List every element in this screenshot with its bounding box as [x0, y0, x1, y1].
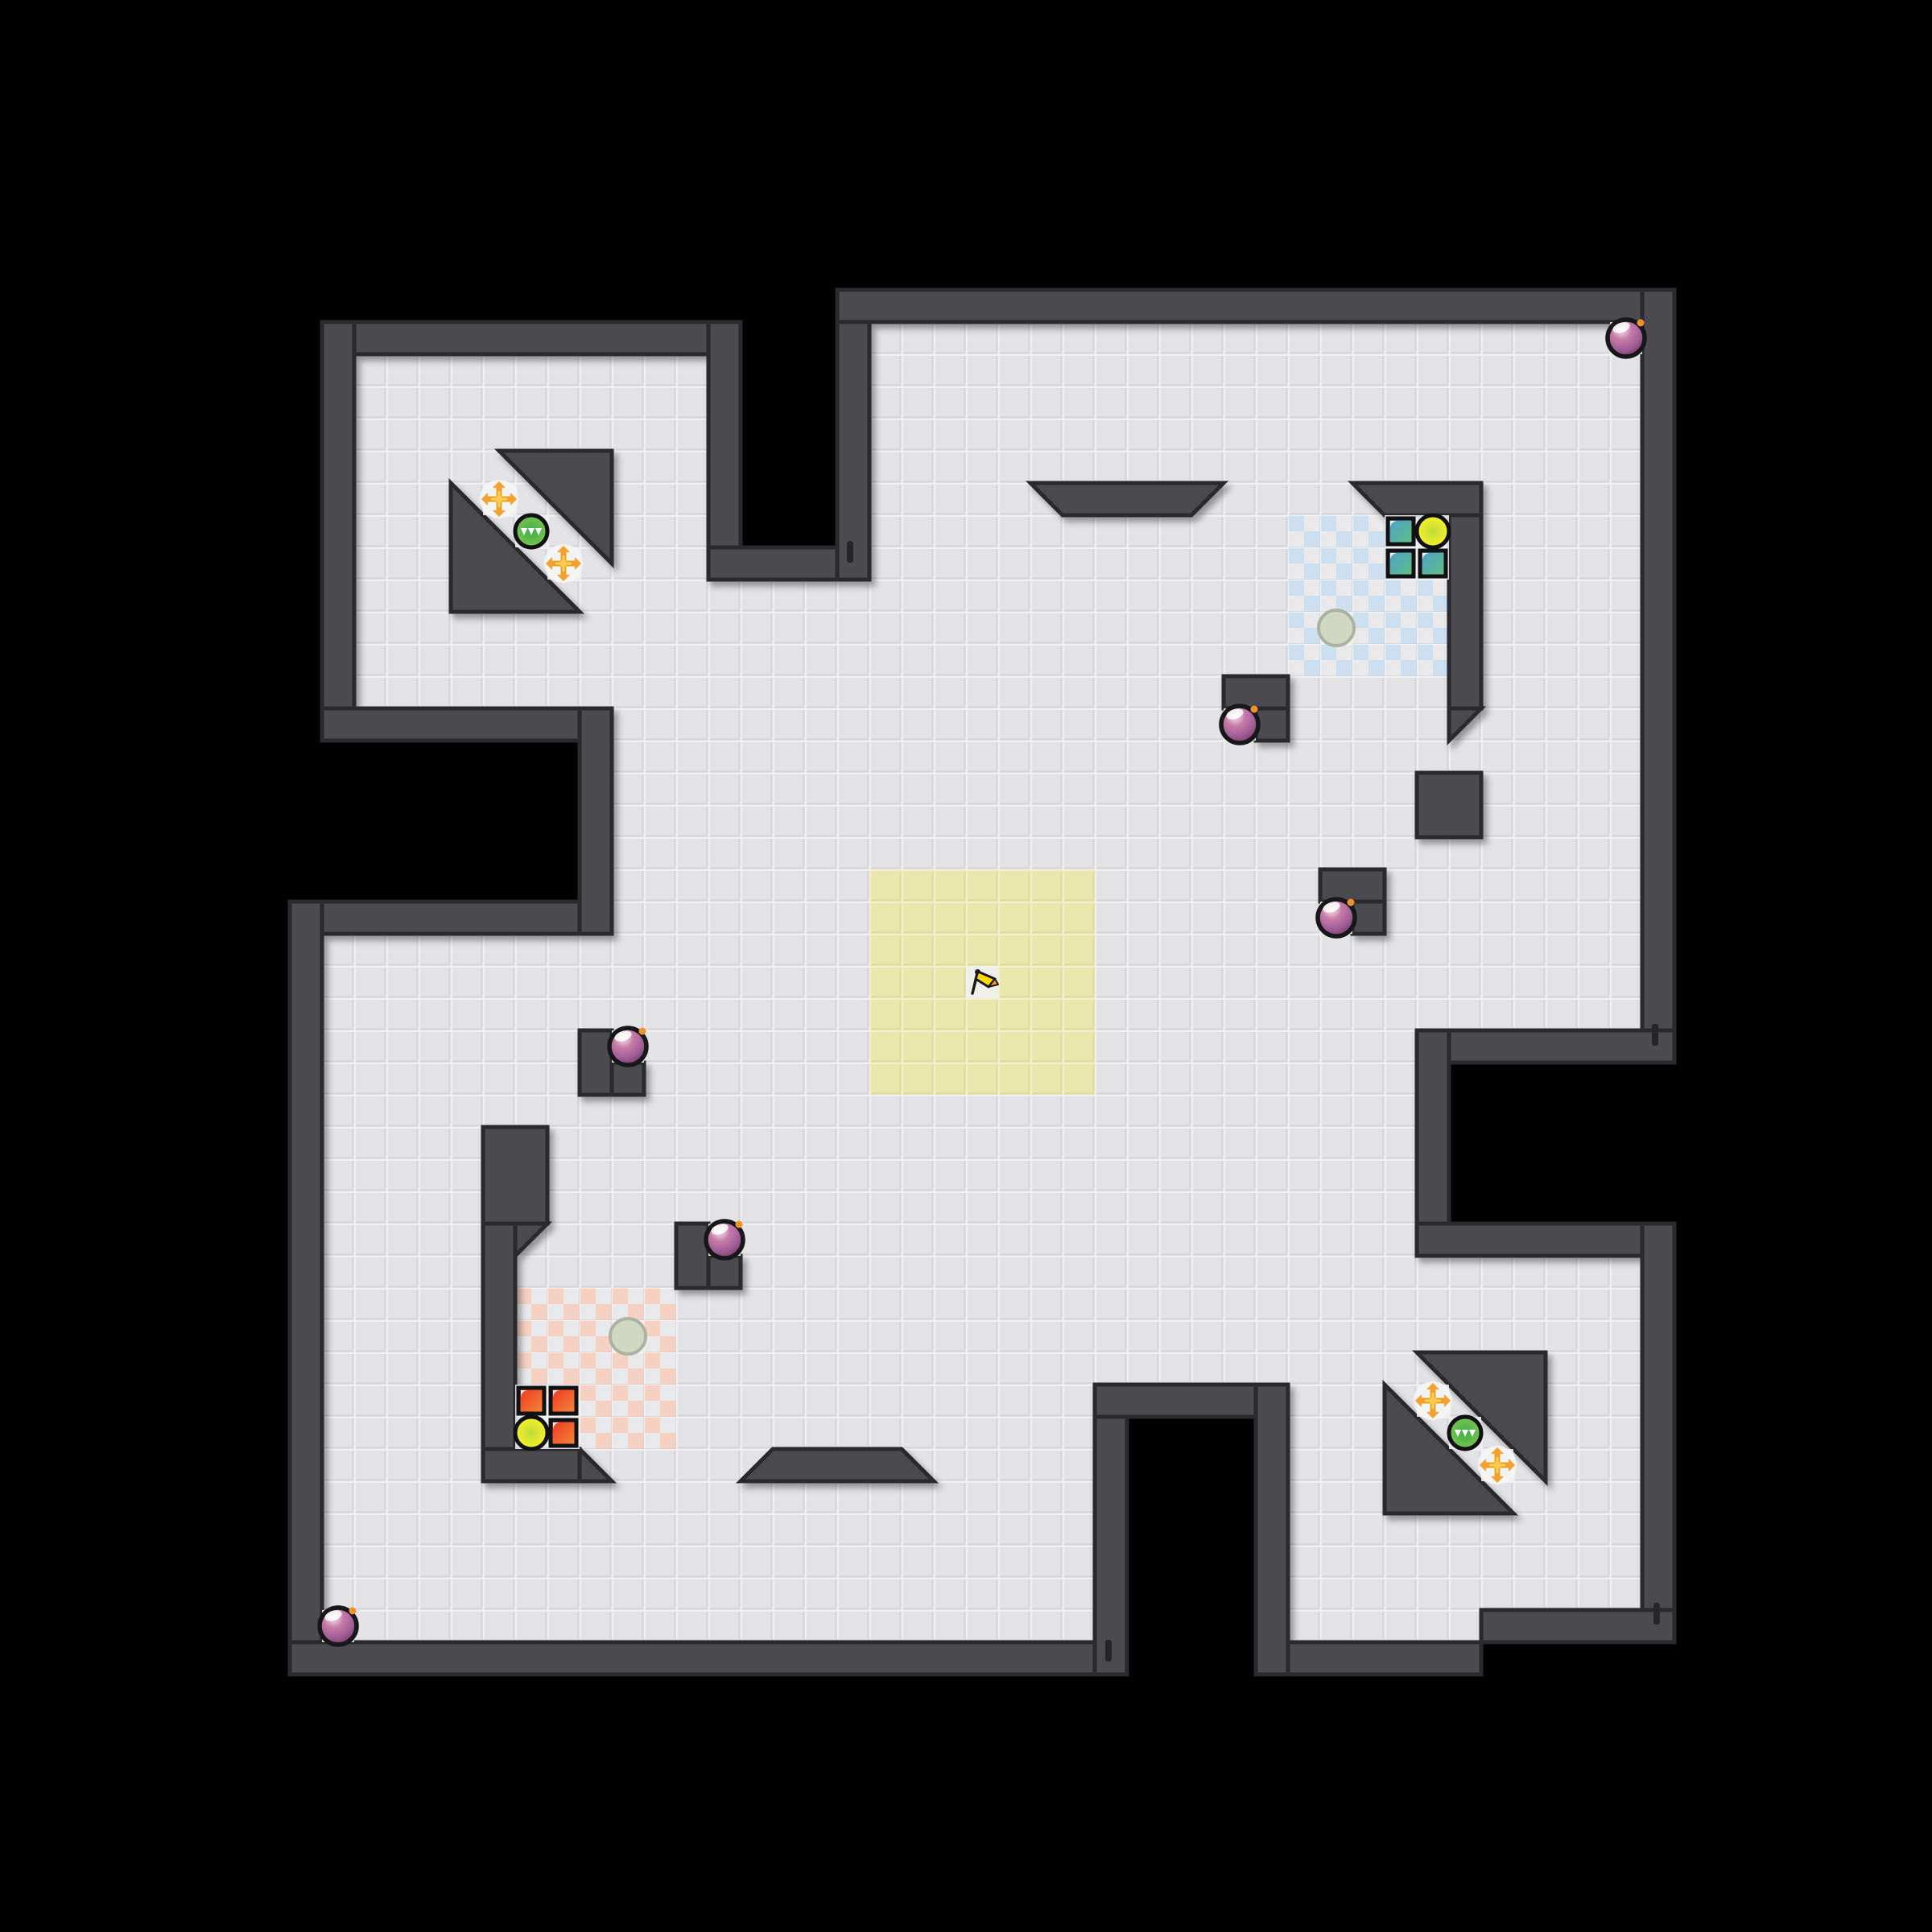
- floor-region: [1288, 1610, 1481, 1642]
- boost-pad: [1414, 1381, 1452, 1420]
- bomb: [1221, 706, 1258, 744]
- bomb-fuse-spark: [1637, 320, 1645, 327]
- wall-segment: [1224, 676, 1288, 708]
- wall-segment: [1256, 708, 1288, 741]
- wall-segment: [580, 1030, 612, 1095]
- powerup-yellow: [1417, 515, 1449, 547]
- bomb-fuse-spark: [639, 1028, 646, 1035]
- wall-segment: [837, 290, 1674, 322]
- powerup-juke: [515, 515, 547, 547]
- wall-diagonal: [1030, 483, 1224, 515]
- wall-segment: [290, 902, 322, 1674]
- bomb-fuse-spark: [736, 1221, 743, 1228]
- boost-pad: [480, 480, 518, 518]
- wall-segment: [837, 290, 869, 580]
- wall-segment: [1320, 869, 1385, 902]
- gate-red: [551, 1388, 576, 1414]
- wall-segment: [1642, 1224, 1674, 1642]
- gate-red: [518, 1388, 544, 1414]
- wall-segment: [483, 1127, 547, 1224]
- wall-segment: [1449, 515, 1481, 708]
- bomb: [609, 1028, 646, 1066]
- bomb-fuse-spark: [349, 1608, 357, 1615]
- game-map[interactable]: [0, 0, 1932, 1932]
- tick-mark: [1653, 1603, 1660, 1624]
- wall-segment: [1095, 1385, 1127, 1674]
- bomb: [1318, 899, 1355, 937]
- gate-blue: [1388, 551, 1414, 576]
- wall-segment: [580, 708, 612, 934]
- wall-segment: [322, 322, 708, 354]
- floor-region: [869, 322, 1642, 580]
- wall-segment: [1417, 1224, 1674, 1256]
- wall-segment: [1256, 1385, 1288, 1674]
- wall-segment: [483, 1449, 580, 1481]
- wall-segment: [290, 902, 580, 934]
- floor-region: [322, 1385, 1095, 1642]
- game-map-viewport[interactable]: [0, 0, 1932, 1932]
- floor-region: [708, 580, 837, 708]
- wall-segment: [1481, 1610, 1674, 1642]
- bomb: [706, 1221, 743, 1259]
- boost-pad: [544, 544, 583, 583]
- wall-segment: [612, 1063, 644, 1095]
- wall-diagonal: [741, 1449, 934, 1481]
- wall-segment: [322, 322, 354, 708]
- powerup-juke: [1449, 1417, 1481, 1449]
- tick-mark: [1105, 1640, 1112, 1662]
- wall-segment: [1642, 290, 1674, 1063]
- tick-mark: [847, 541, 853, 563]
- tick-mark: [1652, 1024, 1658, 1046]
- wall-segment: [483, 1224, 515, 1449]
- boost-pad: [1478, 1446, 1517, 1484]
- wall-segment: [1288, 1642, 1481, 1674]
- gate-blue: [1420, 551, 1446, 576]
- spawn-point: [610, 1319, 646, 1354]
- wall-segment: [1417, 773, 1481, 837]
- wall-segment: [1352, 902, 1385, 934]
- wall-segment: [708, 322, 741, 580]
- spawn-point: [1319, 610, 1354, 646]
- wall-segment: [676, 1224, 708, 1288]
- wall-segment: [322, 708, 612, 741]
- bomb-fuse-spark: [1348, 899, 1355, 906]
- wall-segment: [708, 1256, 741, 1288]
- bomb: [320, 1608, 357, 1645]
- gate-blue: [1388, 518, 1414, 544]
- bomb-fuse-spark: [1251, 706, 1258, 713]
- wall-segment: [290, 1642, 1095, 1674]
- floor-region: [612, 708, 1642, 902]
- bomb: [1608, 320, 1645, 357]
- powerup-yellow: [515, 1417, 547, 1449]
- wall-segment: [1417, 1030, 1674, 1063]
- gate-red: [551, 1420, 576, 1446]
- floor-region: [612, 902, 1642, 934]
